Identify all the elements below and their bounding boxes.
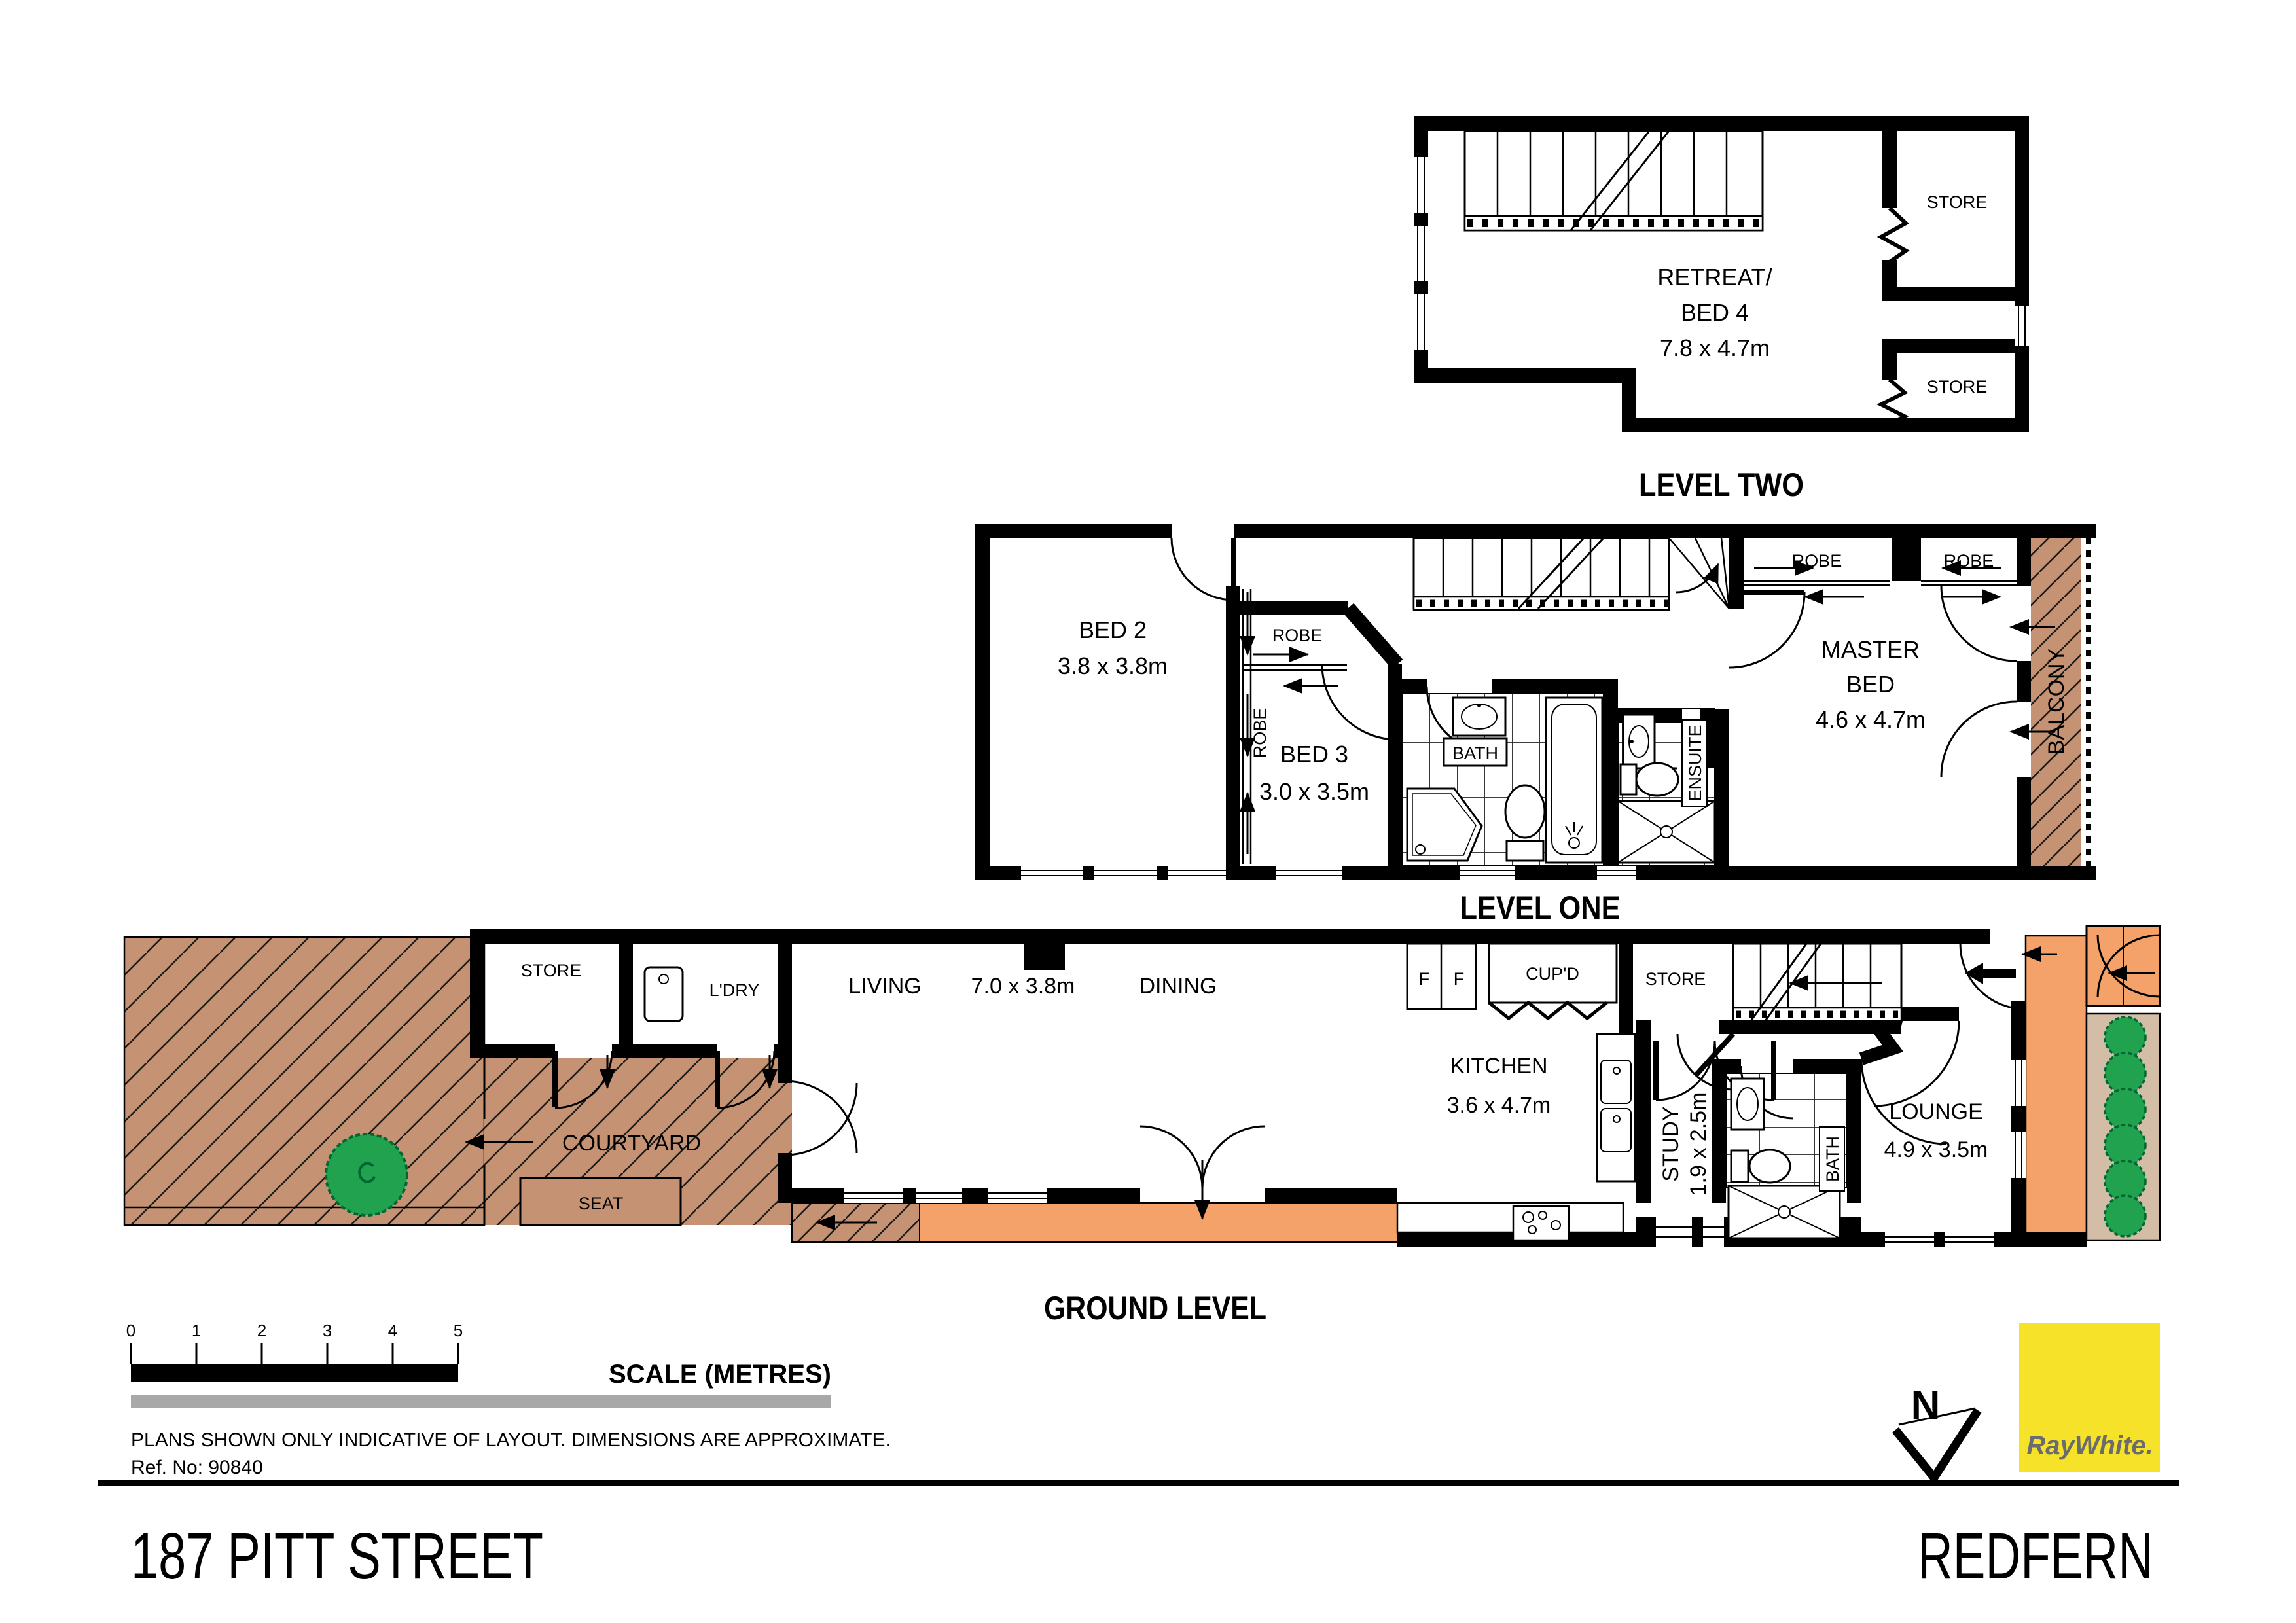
front-gate: [2087, 926, 2160, 1006]
store-lower-label: STORE: [1927, 377, 1988, 397]
footer-rule: [98, 1480, 2179, 1486]
scale-bar-black: [131, 1364, 458, 1382]
basin-icon: [1453, 698, 1505, 736]
robe-bed2-label: ROBE: [1250, 708, 1270, 758]
disclaimer-text: PLANS SHOWN ONLY INDICATIVE OF LAYOUT. D…: [131, 1429, 891, 1451]
bathtub-icon: [1546, 698, 1602, 863]
skylight-icon: [1729, 1186, 1840, 1238]
retreat-dims: 7.8 x 4.7m: [1660, 334, 1770, 361]
bed2-dims: 3.8 x 3.8m: [1058, 652, 1168, 679]
fridge-right-label: F: [1454, 969, 1465, 989]
rear-garden: [124, 937, 484, 1225]
dining-label: DINING: [1139, 974, 1217, 999]
robe-master-right-label: ROBE: [1944, 551, 1994, 571]
ground-level-plan: SEAT: [124, 926, 2160, 1327]
level-one-plan: BED 2 3.8 x 3.8m ROBE ROBE BED 3 3.0 x 3…: [975, 524, 2096, 926]
vanity-icon: [1623, 715, 1655, 768]
rear-deck: [920, 1203, 1397, 1242]
tree-icon: [326, 1134, 407, 1215]
master-label-2: BED: [1846, 671, 1895, 698]
floorplan-drawing: RETREAT/ BED 4 7.8 x 4.7m STORE STORE LE…: [0, 0, 2296, 1623]
toilet-icon: [1621, 763, 1678, 796]
scale-ticks: [131, 1343, 458, 1364]
bed2-label: BED 2: [1079, 616, 1147, 643]
kitchen-dims: 3.6 x 4.7m: [1447, 1093, 1551, 1118]
study-dims: 1.9 x 2.5m: [1686, 1092, 1711, 1196]
master-label-1: MASTER: [1821, 636, 1920, 663]
scale-tick-3: 3: [323, 1321, 332, 1340]
scale-tick-4: 4: [388, 1321, 397, 1340]
store-label: STORE: [521, 961, 582, 980]
level-one-title: LEVEL ONE: [1460, 889, 1621, 926]
store-understairs-label: STORE: [1645, 969, 1706, 989]
fridge-left-label: F: [1419, 969, 1430, 989]
address-text: 187 PITT STREET: [131, 1520, 543, 1593]
robe-master-left-label: ROBE: [1792, 551, 1842, 571]
verandah: [2026, 936, 2087, 1240]
robe-bed3-label: ROBE: [1272, 626, 1323, 645]
stairs-icon: [1465, 131, 1763, 230]
scale-tick-5: 5: [454, 1321, 463, 1340]
washer-icon: [645, 967, 683, 1021]
kitchen-label: KITCHEN: [1450, 1054, 1547, 1079]
courtyard-label: COURTYARD: [562, 1131, 701, 1156]
skylight-icon: [1618, 801, 1715, 863]
bath-label-box: BATH: [1820, 1127, 1844, 1191]
scale-tick-0: 0: [126, 1321, 135, 1340]
scale-bar: 0 1 2 3 4 5 SCALE (METRES) PLANS SHOWN O…: [126, 1321, 891, 1478]
laundry-label: L'DRY: [709, 980, 760, 1000]
ray-white-logo: RayWhite.: [2019, 1323, 2160, 1472]
retreat-label-2: BED 4: [1681, 299, 1749, 326]
gray-rule: [131, 1395, 831, 1408]
scale-tick-1: 1: [192, 1321, 201, 1340]
bath-label: BATH: [1452, 743, 1498, 763]
front-garden: [2087, 1014, 2160, 1240]
living-dims: 7.0 x 3.8m: [971, 974, 1075, 999]
logo-brand-text: RayWhite.: [2026, 1431, 2153, 1460]
ref-number: Ref. No: 90840: [131, 1457, 263, 1478]
sink-bench-icon: [1597, 1034, 1635, 1181]
footer: 187 PITT STREET REDFERN: [98, 1480, 2179, 1593]
floorplan-page: RETREAT/ BED 4 7.8 x 4.7m STORE STORE LE…: [0, 0, 2296, 1623]
bed3-label: BED 3: [1280, 741, 1348, 768]
study-label: STUDY: [1659, 1106, 1683, 1181]
north-arrow: N: [1895, 1383, 1978, 1478]
lounge-label: LOUNGE: [1889, 1099, 1983, 1124]
bath-label-box: BATH: [1444, 738, 1507, 766]
bath-label: BATH: [1823, 1136, 1842, 1182]
fridge-cupboards: [1407, 944, 1617, 1018]
toilet-icon: [1505, 785, 1545, 861]
retreat-label-1: RETREAT/: [1657, 264, 1772, 291]
store-upper-label: STORE: [1927, 192, 1988, 212]
level-two-title: LEVEL TWO: [1639, 467, 1804, 503]
living-label: LIVING: [848, 974, 921, 999]
ground-level-title: GROUND LEVEL: [1044, 1290, 1266, 1327]
vanity-icon: [1731, 1079, 1764, 1130]
ensuite-label: ENSUITE: [1685, 724, 1705, 801]
seat-box: SEAT: [520, 1178, 681, 1225]
suburb-text: REDFERN: [1918, 1520, 2153, 1593]
seat-label: SEAT: [579, 1194, 624, 1213]
master-dims: 4.6 x 4.7m: [1816, 706, 1926, 733]
balcony-label: BALCONY: [2044, 649, 2069, 755]
lounge-dims: 4.9 x 3.5m: [1884, 1137, 1988, 1162]
stairs-icon: [1733, 944, 1901, 1021]
cupboard-label: CUP'D: [1526, 964, 1579, 984]
toilet-icon: [1731, 1150, 1790, 1183]
level-two-plan: RETREAT/ BED 4 7.8 x 4.7m STORE STORE LE…: [1414, 116, 2029, 503]
ensuite-label-box: ENSUITE: [1682, 720, 1707, 806]
scale-tick-2: 2: [257, 1321, 266, 1340]
bed3-dims: 3.0 x 3.5m: [1259, 778, 1369, 805]
scale-label: SCALE (METRES): [609, 1360, 831, 1389]
cupboard-bifold: [1489, 1003, 1607, 1018]
